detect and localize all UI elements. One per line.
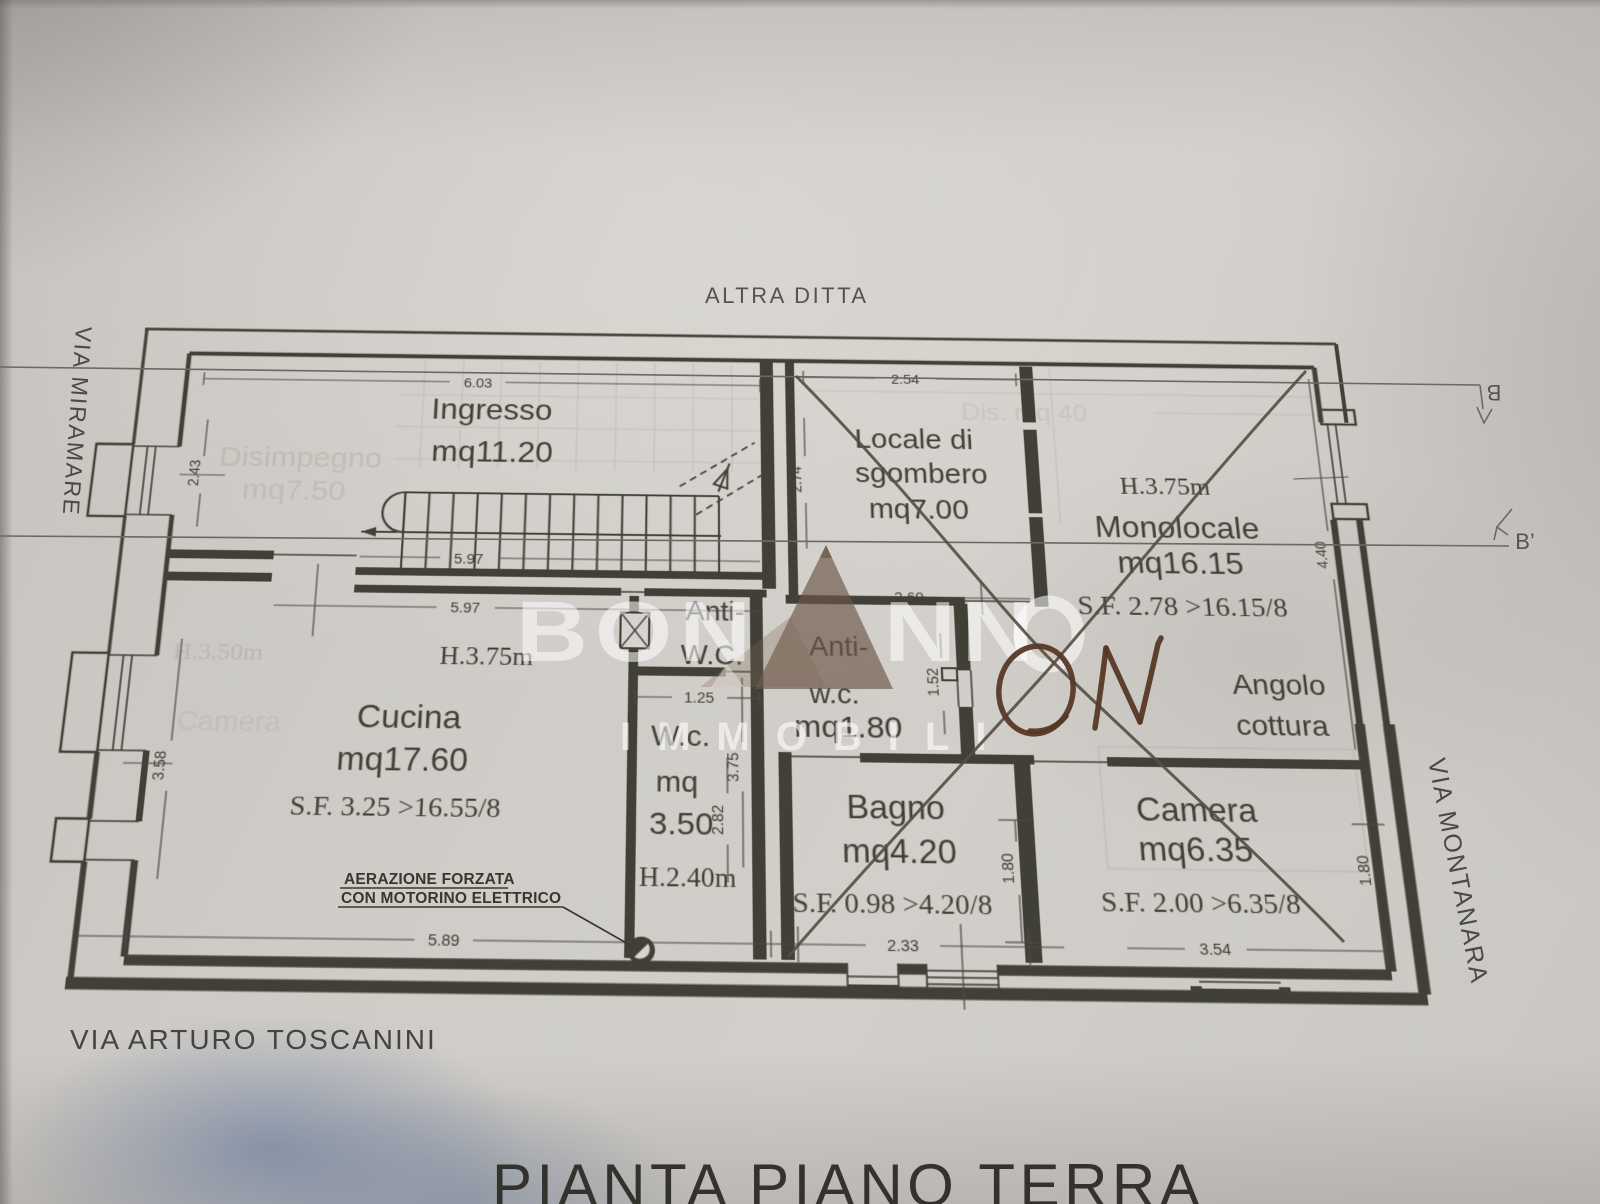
svg-text:VIA MONTANARA: VIA MONTANARA — [1422, 756, 1493, 987]
svg-text:VIA ARTURO TOSCANINI: VIA ARTURO TOSCANINI — [70, 1024, 437, 1055]
svg-text:VIA MIRAMARE: VIA MIRAMARE — [58, 326, 97, 518]
svg-text:AERAZIONE FORZATA: AERAZIONE FORZATA — [344, 871, 515, 888]
svg-text:CON MOTORINO ELETTRICO: CON MOTORINO ELETTRICO — [341, 890, 561, 907]
svg-text:PIANTA PIANO TERRA: PIANTA PIANO TERRA — [492, 1152, 1204, 1204]
svg-text:ALTRA DITTA: ALTRA DITTA — [705, 283, 869, 308]
svg-text:IMMOBILI: IMMOBILI — [620, 715, 1012, 759]
svg-text:B’: B’ — [1515, 529, 1535, 554]
svg-text:BON: BON — [516, 584, 758, 680]
svg-text:B: B — [1487, 380, 1502, 405]
